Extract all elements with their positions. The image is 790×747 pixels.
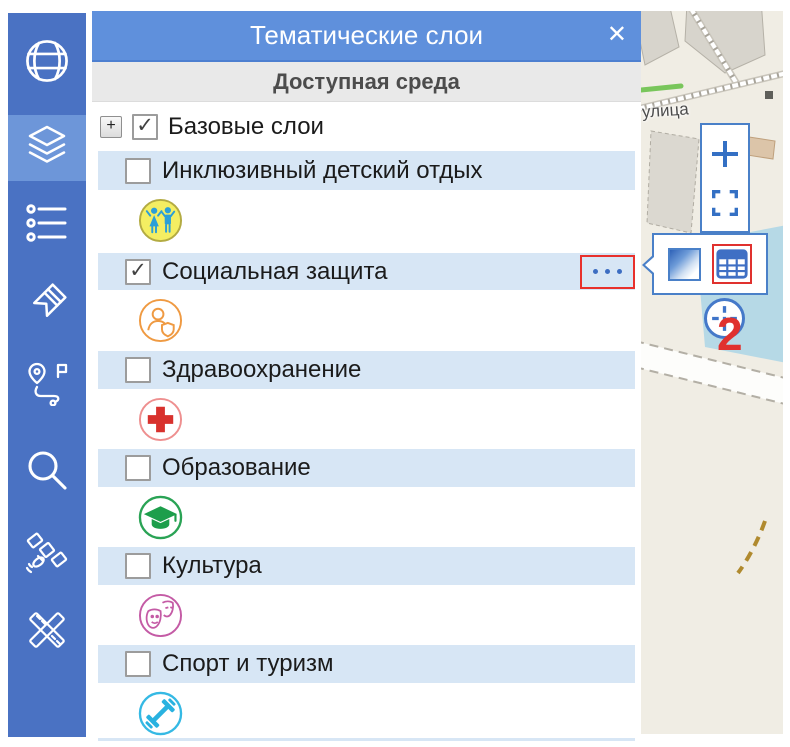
- social-protection-icon: [138, 298, 183, 343]
- panel-header: Тематические слои ✕: [92, 11, 641, 62]
- inclusive-recreation-checkbox[interactable]: [125, 158, 151, 184]
- layer-row-sport-tourism[interactable]: Спорт и туризм: [98, 645, 635, 683]
- layer-label: Базовые слои: [168, 113, 324, 141]
- tag-tool-button[interactable]: [8, 274, 86, 336]
- layer-legend-row: [98, 487, 635, 547]
- layer-row-social-protection[interactable]: ✓ Социальная защита: [98, 253, 635, 290]
- measure-icon: [24, 607, 70, 658]
- layer-label: Спорт и туризм: [162, 650, 333, 678]
- map-controls: [700, 123, 750, 233]
- social-protection-checkbox[interactable]: ✓: [125, 259, 151, 285]
- layer-row-education[interactable]: Образование: [98, 449, 635, 487]
- thematic-layers-panel: Тематические слои ✕ Доступная среда + ✓ …: [92, 11, 641, 738]
- globe-icon: [22, 36, 72, 91]
- education-icon: [138, 495, 183, 540]
- search-tool-button[interactable]: [8, 441, 86, 503]
- fullscreen-button[interactable]: [709, 187, 741, 219]
- layers-icon: [24, 123, 70, 174]
- fullscreen-brackets-icon: [709, 187, 741, 219]
- layer-row-healthcare[interactable]: Здравоохранение: [98, 351, 635, 389]
- globe-tool-button[interactable]: [8, 32, 86, 94]
- legend-list-icon: [24, 200, 70, 251]
- measure-tool-button[interactable]: [8, 601, 86, 663]
- layer-label: Социальная защита: [162, 258, 388, 286]
- layer-legend-row: [98, 389, 635, 449]
- culture-checkbox[interactable]: [125, 553, 151, 579]
- layer-label: Здравоохранение: [162, 356, 361, 384]
- table-icon: [715, 247, 749, 281]
- base-layers-checkbox[interactable]: ✓: [132, 114, 158, 140]
- layer-options-popup: [652, 233, 768, 295]
- layer-label: Инклюзивный детский отдых: [162, 157, 483, 185]
- healthcare-icon: [138, 397, 183, 442]
- search-icon: [24, 447, 70, 498]
- layer-row-culture[interactable]: Культура: [98, 547, 635, 585]
- map-canvas[interactable]: улица 2: [641, 11, 783, 734]
- opacity-style-button[interactable]: [668, 248, 701, 281]
- layer-legend-row: [98, 683, 635, 738]
- layer-label: Образование: [162, 454, 311, 482]
- attribute-table-button[interactable]: [712, 244, 752, 284]
- tag-icon: [24, 280, 70, 331]
- layer-row-inclusive-recreation[interactable]: Инклюзивный детский отдых: [98, 151, 635, 190]
- satellite-icon: [24, 528, 70, 579]
- route-icon: [24, 360, 70, 411]
- sport-tourism-checkbox[interactable]: [125, 651, 151, 677]
- legend-list-tool-button[interactable]: [8, 194, 86, 256]
- layer-legend-row: 1: [98, 190, 635, 252]
- panel-subtitle: Доступная среда: [92, 62, 641, 102]
- layer-label: Культура: [162, 552, 262, 580]
- plus-icon: [708, 137, 742, 171]
- layer-row-partial: [98, 738, 635, 741]
- children-icon: [138, 198, 183, 243]
- culture-icon: [138, 593, 183, 638]
- healthcare-checkbox[interactable]: [125, 357, 151, 383]
- education-checkbox[interactable]: [125, 455, 151, 481]
- step-2-annotation: 2: [717, 307, 743, 361]
- popup-pointer: [642, 254, 654, 276]
- route-tool-button[interactable]: [8, 354, 86, 416]
- zoom-in-button[interactable]: [708, 137, 742, 171]
- layers-tool-button[interactable]: [8, 115, 86, 181]
- layer-tree: + ✓ Базовые слои Инклюзивный детский отд…: [92, 102, 641, 740]
- sport-tourism-icon: [138, 691, 183, 736]
- layer-legend-row: [98, 585, 635, 645]
- toolbar: [8, 13, 86, 737]
- layer-row-base-layers[interactable]: + ✓ Базовые слои: [98, 103, 635, 151]
- panel-title: Тематические слои: [250, 20, 483, 51]
- layer-legend-row: [98, 290, 635, 350]
- street-label: улица: [641, 99, 689, 122]
- satellite-tool-button[interactable]: [8, 522, 86, 584]
- expand-icon[interactable]: +: [100, 116, 122, 138]
- layer-options-button[interactable]: [580, 255, 635, 289]
- close-icon[interactable]: ✕: [607, 11, 627, 58]
